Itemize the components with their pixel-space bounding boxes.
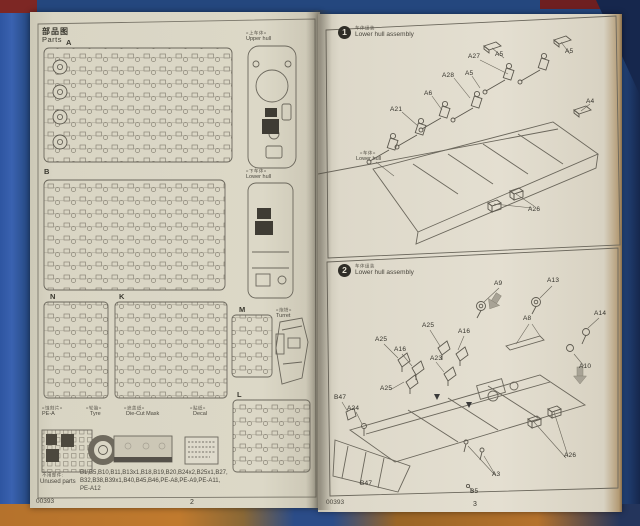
- part-label-a9: A9: [494, 280, 502, 287]
- part-label-a26: A26: [528, 206, 540, 213]
- part-label-a21: A21: [390, 106, 402, 113]
- unused-parts-line2: B32,B38,B39x1,B40,B45,B46,PE-A8,PE-A9,PE…: [80, 478, 220, 484]
- part-label-a3: A3: [492, 471, 500, 478]
- cover-left-edge: [0, 0, 30, 526]
- part-label-a16: A16: [458, 328, 470, 335]
- unused-parts-label-cn: 不用部件:: [42, 472, 64, 478]
- part-label-b47: B47: [334, 394, 346, 401]
- diecut-label-en: Die-Cut Mask: [126, 411, 159, 417]
- part-label-a5: A5: [465, 70, 473, 77]
- sprue-letter-b: B: [44, 167, 49, 176]
- scanned-instruction-sheet: 部品图 Parts A B N K M L «上车体» Upper hull «…: [0, 0, 640, 526]
- step-1-badge: 1: [338, 26, 351, 39]
- sprue-letter-k: K: [119, 292, 124, 301]
- pe-label-en: PE-A: [42, 411, 55, 417]
- lower-hull-label-en: Lower hull: [246, 174, 271, 180]
- decal-label-en: Decal: [193, 411, 207, 417]
- sprue-letter-n: N: [50, 292, 55, 301]
- part-label-a28: A28: [442, 72, 454, 79]
- step-2-title-en: Lower hull assembly: [355, 269, 414, 276]
- part-label-a6: A6: [424, 90, 432, 97]
- parts-page-line-art: [30, 12, 320, 508]
- parts-title-en: Parts: [42, 35, 62, 44]
- page-number-left: 2: [190, 499, 194, 506]
- part-label-a27: A27: [468, 53, 480, 60]
- part-label-a24: A24: [347, 405, 359, 412]
- page-number-right: 3: [473, 501, 477, 508]
- sprue-letter-m: M: [239, 305, 245, 314]
- assembly-page: 1 车体组装 Lower hull assembly A27 A5 A5 A28…: [318, 14, 622, 512]
- part-label-a14: A14: [594, 310, 606, 317]
- part-label-b5: B5: [470, 488, 478, 495]
- page-fold-shadow: [306, 10, 332, 510]
- part-label-a23: A23: [430, 355, 442, 362]
- part-label-a4: A4: [586, 98, 594, 105]
- part-label-a5: A5: [565, 48, 573, 55]
- part-label-a16: A16: [394, 346, 406, 353]
- lower-hull-note-en: Lower hull: [356, 156, 381, 162]
- turret-label-en: Turret: [276, 313, 290, 319]
- unused-parts-line3: PE-A12: [80, 486, 101, 492]
- part-label-a5: A5: [495, 51, 503, 58]
- step-2-badge: 2: [338, 264, 351, 277]
- step-1-title-en: Lower hull assembly: [355, 31, 414, 38]
- part-label-a10: A10: [579, 363, 591, 370]
- unused-parts-line1: B1,B5,B10,B11,B13x1,B18,B19,B20,B24x2,B2…: [80, 470, 228, 476]
- parts-page: 部品图 Parts A B N K M L «上车体» Upper hull «…: [30, 12, 320, 508]
- part-label-a25: A25: [422, 322, 434, 329]
- kit-number-left: 00393: [36, 498, 54, 505]
- part-label-b47: B47: [360, 480, 372, 487]
- part-label-a8: A8: [523, 315, 531, 322]
- part-label-a26: A26: [564, 452, 576, 459]
- part-label-a25: A25: [380, 385, 392, 392]
- part-label-a13: A13: [547, 277, 559, 284]
- upper-hull-label-en: Upper hull: [246, 36, 271, 42]
- sprue-letter-l: L: [237, 390, 242, 399]
- unused-parts-label-en: Unused parts: [40, 479, 76, 485]
- part-label-a25: A25: [375, 336, 387, 343]
- sprue-letter-a: A: [66, 38, 71, 47]
- tyre-label-en: Tyre: [90, 411, 101, 417]
